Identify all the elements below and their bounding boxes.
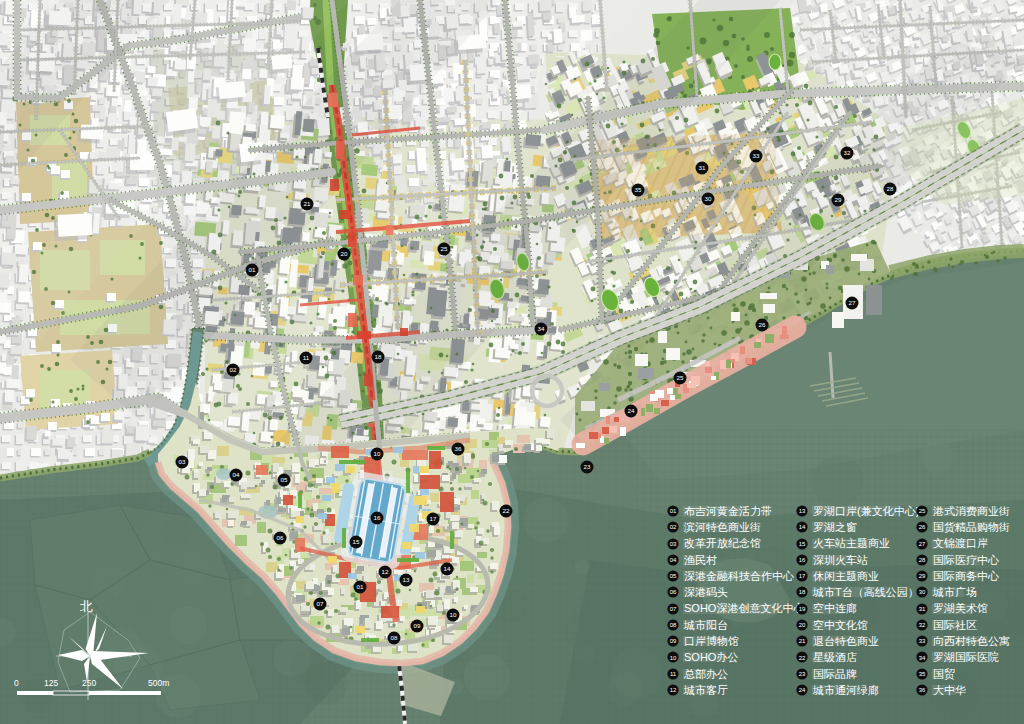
svg-text:250: 250 xyxy=(82,678,96,688)
svg-text:16: 16 xyxy=(374,514,381,521)
svg-text:火车站主题商业: 火车站主题商业 xyxy=(813,537,890,549)
svg-text:改革开放纪念馆: 改革开放纪念馆 xyxy=(684,537,761,549)
svg-text:罗湖口岸(兼文化中心): 罗湖口岸(兼文化中心) xyxy=(813,505,919,517)
svg-text:深港金融科技合作中心: 深港金融科技合作中心 xyxy=(684,570,794,582)
svg-text:32: 32 xyxy=(919,622,926,628)
svg-text:33: 33 xyxy=(753,152,760,159)
svg-text:19: 19 xyxy=(799,606,806,612)
svg-text:城市阳台: 城市阳台 xyxy=(683,619,728,631)
svg-text:30: 30 xyxy=(919,589,926,595)
svg-text:500m: 500m xyxy=(148,678,169,688)
svg-text:16: 16 xyxy=(799,557,806,563)
svg-text:33: 33 xyxy=(919,638,926,644)
svg-text:国际品牌: 国际品牌 xyxy=(813,668,857,680)
svg-text:0: 0 xyxy=(14,678,19,688)
svg-text:大中华: 大中华 xyxy=(933,684,966,696)
svg-text:20: 20 xyxy=(341,250,348,257)
svg-text:滨河特色商业街: 滨河特色商业街 xyxy=(684,521,761,533)
svg-text:15: 15 xyxy=(799,541,806,547)
svg-text:06: 06 xyxy=(277,534,284,541)
svg-text:24: 24 xyxy=(628,407,635,414)
svg-text:22: 22 xyxy=(503,507,510,514)
svg-text:布吉河黄金活力带: 布吉河黄金活力带 xyxy=(684,505,772,517)
svg-text:03: 03 xyxy=(670,541,677,547)
svg-text:罗湖之窗: 罗湖之窗 xyxy=(813,521,857,533)
svg-text:城市客厅: 城市客厅 xyxy=(683,684,728,696)
svg-text:11: 11 xyxy=(303,354,310,361)
svg-text:17: 17 xyxy=(430,515,437,522)
svg-text:空中文化馆: 空中文化馆 xyxy=(813,619,868,631)
svg-text:国际社区: 国际社区 xyxy=(933,619,977,631)
svg-text:35: 35 xyxy=(919,671,926,677)
svg-text:北: 北 xyxy=(80,599,93,614)
svg-text:29: 29 xyxy=(919,573,926,579)
svg-text:渔民村: 渔民村 xyxy=(684,554,717,566)
svg-text:国贸: 国贸 xyxy=(933,668,955,680)
svg-text:27: 27 xyxy=(849,299,856,306)
svg-text:34: 34 xyxy=(919,655,926,661)
svg-text:05: 05 xyxy=(670,573,677,579)
svg-text:09: 09 xyxy=(670,638,677,644)
svg-text:26: 26 xyxy=(759,321,766,328)
svg-text:22: 22 xyxy=(799,655,806,661)
svg-text:14: 14 xyxy=(444,565,451,572)
svg-text:07: 07 xyxy=(317,600,324,607)
svg-text:31: 31 xyxy=(919,606,926,612)
svg-text:01: 01 xyxy=(249,266,256,273)
svg-text:国际商务中心: 国际商务中心 xyxy=(933,570,999,582)
svg-text:09: 09 xyxy=(414,622,421,629)
svg-text:18: 18 xyxy=(375,353,382,360)
svg-text:星级酒店: 星级酒店 xyxy=(813,651,857,663)
svg-text:32: 32 xyxy=(844,149,851,156)
svg-text:20: 20 xyxy=(799,622,806,628)
svg-text:罗湖国际医院: 罗湖国际医院 xyxy=(933,651,999,663)
svg-text:31: 31 xyxy=(699,164,706,171)
svg-text:06: 06 xyxy=(670,589,677,595)
svg-text:12: 12 xyxy=(382,568,389,575)
svg-text:13: 13 xyxy=(799,508,806,514)
svg-text:空中连廊: 空中连廊 xyxy=(813,602,857,614)
svg-text:18: 18 xyxy=(799,589,806,595)
svg-text:23: 23 xyxy=(799,671,806,677)
svg-text:21: 21 xyxy=(304,200,311,207)
svg-text:总部办公: 总部办公 xyxy=(683,668,728,680)
svg-text:城市通河绿廊: 城市通河绿廊 xyxy=(812,684,879,696)
svg-text:25: 25 xyxy=(919,508,926,514)
svg-text:城市广场: 城市广场 xyxy=(932,586,977,598)
svg-text:国货精品购物街: 国货精品购物街 xyxy=(933,521,1010,533)
svg-text:SOHO深港创意文化中心: SOHO深港创意文化中心 xyxy=(684,602,804,614)
svg-text:休闲主题商业: 休闲主题商业 xyxy=(813,570,879,582)
svg-text:36: 36 xyxy=(919,687,926,693)
svg-text:深港码头: 深港码头 xyxy=(684,586,728,598)
svg-text:向西村特色公寓: 向西村特色公寓 xyxy=(933,635,1010,647)
svg-text:02: 02 xyxy=(670,524,677,530)
svg-text:08: 08 xyxy=(391,634,398,641)
svg-text:125: 125 xyxy=(44,678,58,688)
svg-text:SOHO办公: SOHO办公 xyxy=(684,651,738,663)
svg-text:28: 28 xyxy=(887,185,894,192)
svg-text:口岸博物馆: 口岸博物馆 xyxy=(684,635,739,647)
svg-text:14: 14 xyxy=(799,524,806,530)
svg-text:17: 17 xyxy=(799,573,806,579)
svg-text:11: 11 xyxy=(670,671,677,677)
svg-text:36: 36 xyxy=(455,445,462,452)
svg-text:21: 21 xyxy=(799,638,806,644)
svg-text:35: 35 xyxy=(635,186,642,193)
svg-text:01: 01 xyxy=(670,508,677,514)
svg-text:05: 05 xyxy=(281,476,288,483)
svg-text:23: 23 xyxy=(584,463,591,470)
svg-text:34: 34 xyxy=(538,325,545,332)
svg-text:03: 03 xyxy=(179,458,186,465)
svg-text:10: 10 xyxy=(450,611,457,618)
svg-text:15: 15 xyxy=(353,538,360,545)
svg-text:12: 12 xyxy=(670,687,677,693)
svg-text:27: 27 xyxy=(919,541,926,547)
svg-text:04: 04 xyxy=(233,471,240,478)
svg-text:01: 01 xyxy=(357,583,364,590)
svg-text:港式消费商业街: 港式消费商业街 xyxy=(933,505,1010,517)
svg-text:26: 26 xyxy=(919,524,926,530)
svg-text:10: 10 xyxy=(670,655,677,661)
svg-text:28: 28 xyxy=(919,557,926,563)
svg-text:国际医疗中心: 国际医疗中心 xyxy=(933,554,999,566)
svg-text:25: 25 xyxy=(677,374,684,381)
svg-text:罗湖美术馆: 罗湖美术馆 xyxy=(933,602,988,614)
svg-text:25: 25 xyxy=(441,245,448,252)
svg-text:08: 08 xyxy=(670,622,677,628)
svg-text:文锦渡口岸: 文锦渡口岸 xyxy=(933,537,988,549)
svg-text:退台特色商业: 退台特色商业 xyxy=(813,635,879,647)
svg-text:深圳火车站: 深圳火车站 xyxy=(813,554,868,566)
svg-text:02: 02 xyxy=(230,366,237,373)
svg-text:24: 24 xyxy=(799,687,806,693)
svg-text:城市T台（高线公园）: 城市T台（高线公园） xyxy=(812,586,919,598)
svg-text:10: 10 xyxy=(374,450,381,457)
svg-text:07: 07 xyxy=(670,606,677,612)
svg-text:30: 30 xyxy=(705,195,712,202)
svg-text:04: 04 xyxy=(670,557,677,563)
svg-text:29: 29 xyxy=(835,196,842,203)
svg-text:13: 13 xyxy=(403,576,410,583)
